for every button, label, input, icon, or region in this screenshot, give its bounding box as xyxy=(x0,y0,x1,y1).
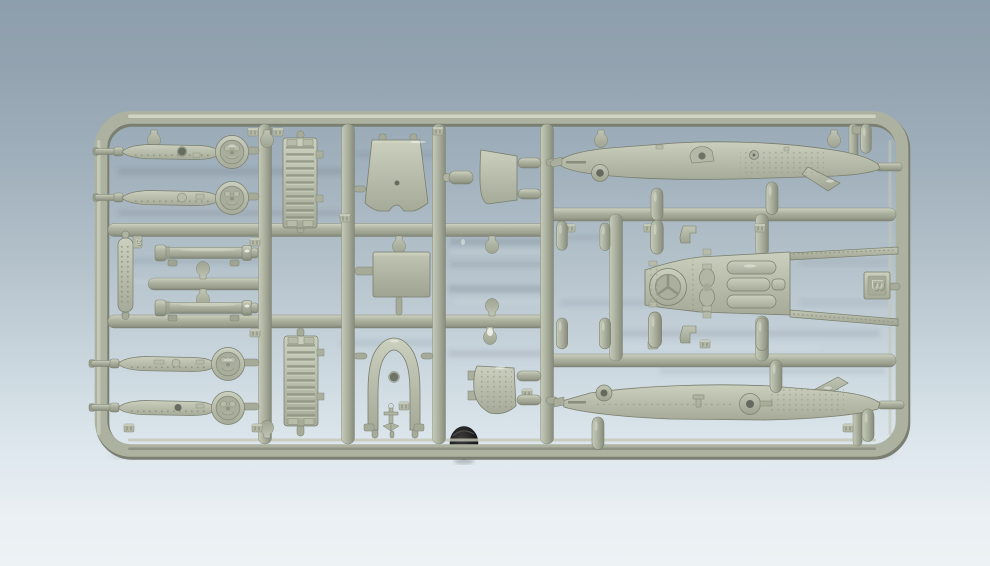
part-step-strip: 20 20 xyxy=(118,231,142,320)
part-anchor xyxy=(383,404,399,432)
sprue-letter-tag: B B B xyxy=(864,272,890,299)
part-bridge-front-panel xyxy=(365,134,428,211)
part-hull-side-lower xyxy=(546,377,904,420)
photo-canvas: 20 20 xyxy=(0,0,990,566)
part-hull-side-upper xyxy=(546,142,902,191)
tag-20-label: 20 xyxy=(134,238,141,246)
part-flat-panel xyxy=(373,252,430,297)
gate-bullet-1 xyxy=(651,188,663,221)
part-deck-gun-tub-1 xyxy=(93,136,249,169)
part-ribbed-panel-top xyxy=(283,138,323,228)
part-ribbed-panel-bottom xyxy=(284,336,324,426)
gate-bullet-2 xyxy=(766,182,778,215)
part-angle-bracket-top xyxy=(680,226,696,243)
gate-bullet-3 xyxy=(770,360,782,393)
part-stern-deck-assembly xyxy=(645,247,898,326)
part-deck-gun-tub-2 xyxy=(93,182,249,215)
part-small-cylinder xyxy=(443,171,473,184)
sprue-photo: 20 20 xyxy=(0,0,990,566)
tag-20: 20 20 xyxy=(133,236,142,248)
part-deck-gun-tub-4 xyxy=(89,392,245,425)
part-deck-gun-tub-3 xyxy=(89,348,245,381)
part-bridge-arch xyxy=(364,338,424,431)
gate-bullet-4 xyxy=(592,417,604,450)
part-angled-side-panel xyxy=(480,150,541,204)
tag-b-label: B xyxy=(869,280,886,292)
